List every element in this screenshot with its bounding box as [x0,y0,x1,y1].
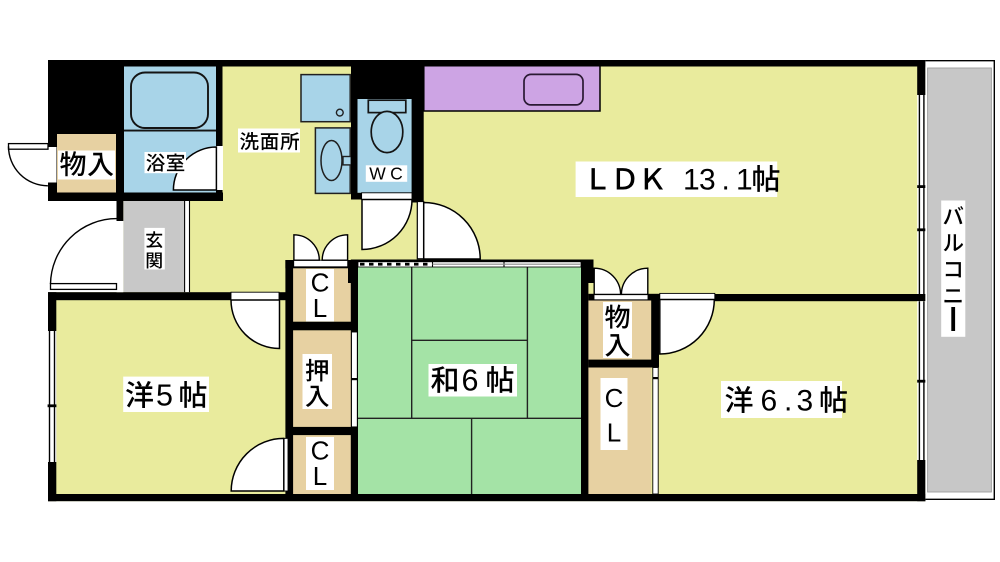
svg-text:.: . [722,164,730,197]
svg-text:3: 3 [699,164,716,197]
svg-text:L: L [313,293,327,323]
svg-text:3: 3 [797,385,814,418]
svg-text:L: L [313,461,327,491]
svg-text:C: C [390,164,403,184]
svg-text:W: W [369,164,386,184]
svg-text:6: 6 [462,364,479,398]
svg-text:C: C [605,383,624,413]
svg-text:5: 5 [156,379,173,413]
svg-text:.: . [784,385,792,418]
svg-text:1: 1 [736,164,753,197]
svg-text:1: 1 [683,164,700,197]
svg-text:6: 6 [761,385,778,418]
svg-text:L: L [607,418,621,448]
